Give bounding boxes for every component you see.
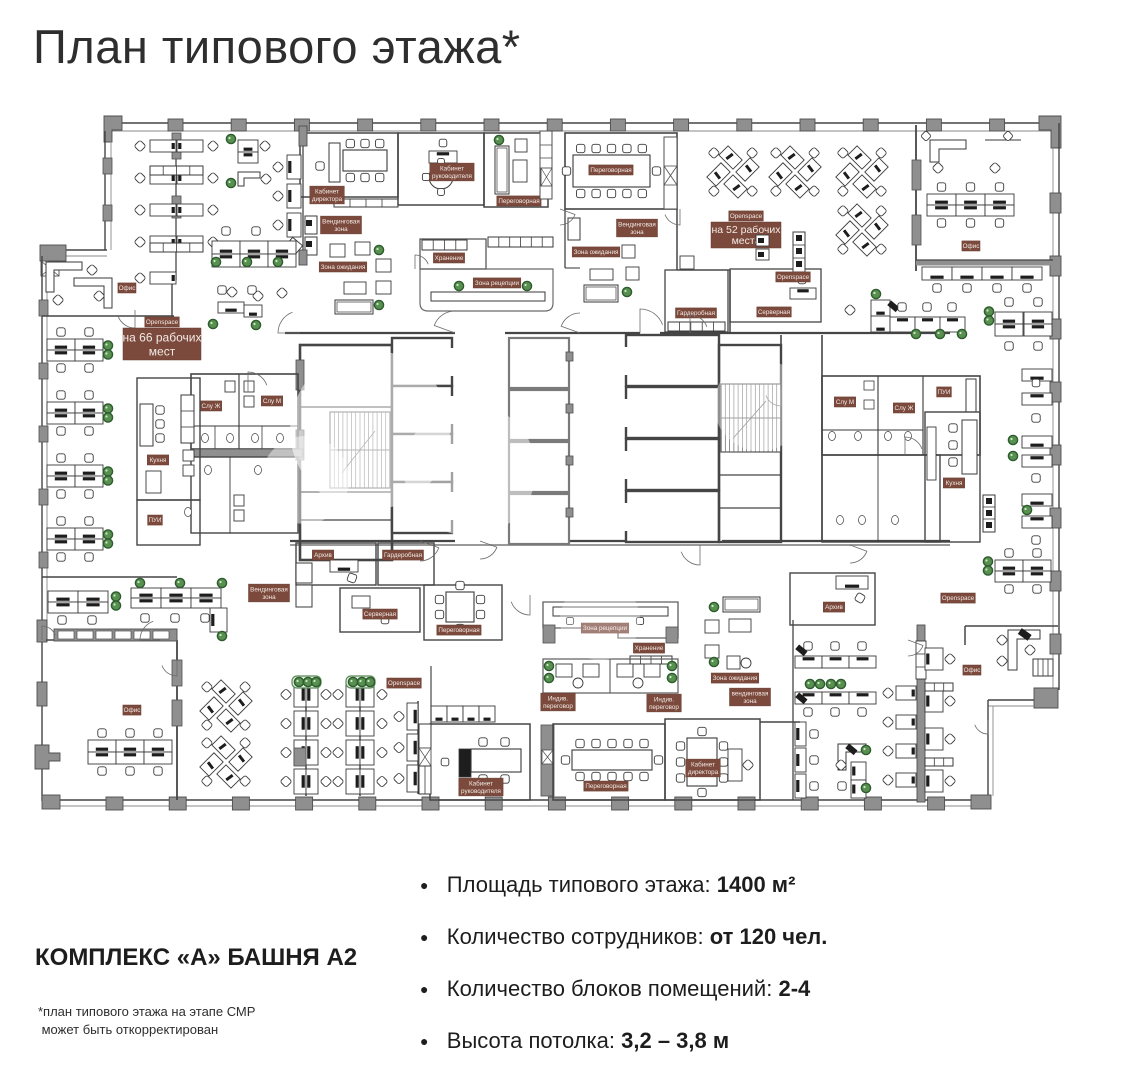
svg-text:Зона ожидания: Зона ожидания: [574, 249, 619, 256]
svg-text:Зона ожидания: Зона ожидания: [321, 264, 366, 271]
svg-text:мест: мест: [149, 345, 176, 359]
svg-text:Офис: Офис: [963, 243, 980, 250]
svg-text:Вендинговая: Вендинговая: [322, 218, 360, 225]
svg-text:Серверная: Серверная: [364, 611, 396, 618]
svg-text:зона: зона: [262, 594, 276, 601]
svg-text:Openspace: Openspace: [388, 680, 421, 687]
svg-text:директора: директора: [312, 196, 343, 203]
svg-text:Вендинговая: Вендинговая: [250, 586, 288, 593]
svg-text:ПУИ: ПУИ: [148, 517, 162, 524]
svg-text:переговор: переговор: [543, 703, 573, 710]
svg-text:Хранение: Хранение: [435, 255, 464, 262]
svg-text:ПУИ: ПУИ: [937, 389, 951, 396]
svg-text:Слу Ж: Слу Ж: [202, 403, 221, 410]
svg-text:Зона рецепции: Зона рецепции: [475, 280, 520, 287]
svg-text:Архив: Архив: [314, 552, 332, 559]
svg-text:Слу М: Слу М: [263, 398, 281, 405]
svg-text:зона: зона: [334, 226, 348, 233]
svg-text:Вендинговая: Вендинговая: [618, 221, 656, 228]
svg-text:вендинговая: вендинговая: [732, 690, 769, 697]
svg-text:Кухня: Кухня: [946, 480, 963, 487]
svg-text:Openspace: Openspace: [777, 274, 810, 281]
svg-text:Openspace: Openspace: [942, 595, 975, 602]
svg-text:Серверная: Серверная: [758, 309, 790, 316]
svg-text:директора: директора: [688, 769, 719, 776]
svg-text:Кухня: Кухня: [150, 457, 167, 464]
svg-text:Переговорная: Переговорная: [590, 167, 631, 174]
svg-text:Офис: Офис: [124, 707, 141, 714]
svg-text:Офис: Офис: [964, 667, 981, 674]
svg-text:Слу М: Слу М: [836, 399, 854, 406]
svg-text:Индив.: Индив.: [548, 695, 569, 702]
svg-text:Гардеробная: Гардеробная: [384, 551, 422, 559]
svg-text:Хранение: Хранение: [635, 645, 664, 652]
svg-text:Архив: Архив: [825, 604, 843, 611]
svg-text:Openspace: Openspace: [146, 319, 179, 326]
svg-text:Переговорная: Переговорная: [585, 783, 626, 790]
svg-text:Офис: Офис: [119, 285, 136, 292]
svg-text:Индив.: Индив.: [654, 696, 675, 703]
svg-text:Переговорная: Переговорная: [498, 198, 539, 205]
svg-text:руководителя: руководителя: [432, 173, 472, 180]
svg-text:Кабинет: Кабинет: [440, 164, 464, 172]
svg-text:Кабинет: Кабинет: [315, 187, 339, 195]
svg-text:Слу Ж: Слу Ж: [895, 405, 914, 412]
svg-text:зона: зона: [630, 229, 644, 236]
svg-text:Кабинет: Кабинет: [691, 760, 715, 768]
svg-text:руководителя: руководителя: [461, 788, 501, 795]
svg-text:Переговорная: Переговорная: [438, 627, 479, 634]
svg-text:Зона ожидания: Зона ожидания: [713, 675, 758, 682]
svg-text:Openspace: Openspace: [730, 213, 763, 220]
svg-text:зона: зона: [743, 698, 757, 705]
svg-text:на 66 рабочих: на 66 рабочих: [123, 331, 202, 345]
svg-text:переговор: переговор: [649, 704, 679, 711]
svg-text:Кабинет: Кабинет: [469, 779, 493, 787]
